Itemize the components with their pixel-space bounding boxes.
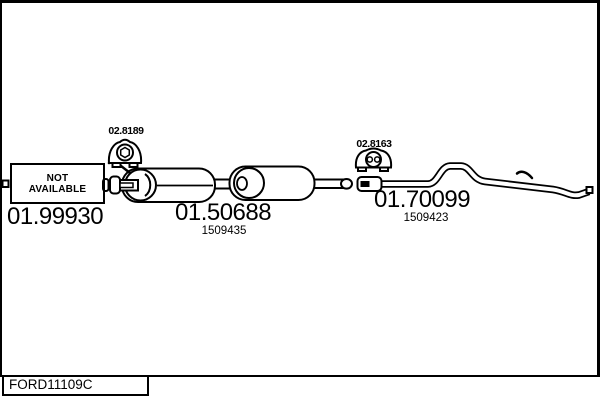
exhaust-diagram-canvas: 02.8189 02.8163 NOT AVAILABLE 01.99930 0…: [0, 0, 600, 400]
rubber-hanger-one-hole-icon: [109, 140, 141, 167]
part-number-center-muffler: 01.50688: [175, 201, 271, 225]
intermediate-pipe-drawing: [214, 180, 231, 189]
connection-point-marker-left: [3, 181, 9, 188]
not-available-box: NOT AVAILABLE: [10, 163, 105, 204]
not-available-line2: AVAILABLE: [29, 184, 87, 195]
middle-muffler-drawing: [230, 167, 353, 201]
hanger-number-label-2: 02.8163: [351, 139, 397, 150]
part-number-front-pipe: 01.99930: [7, 205, 103, 229]
ref-number-center-muffler: 1509435: [174, 226, 274, 238]
hanger-number-label-1: 02.8189: [104, 126, 148, 137]
rubber-hanger-two-hole-icon: [356, 149, 391, 172]
connection-point-marker-right: [587, 187, 593, 193]
diagram-code-label: FORD11109C: [9, 377, 93, 392]
diagram-code-box: FORD11109C: [2, 377, 149, 396]
part-number-rear-pipe: 01.70099: [374, 188, 470, 212]
ref-number-rear-pipe: 1509423: [374, 213, 478, 225]
not-available-line1: NOT: [47, 173, 69, 184]
